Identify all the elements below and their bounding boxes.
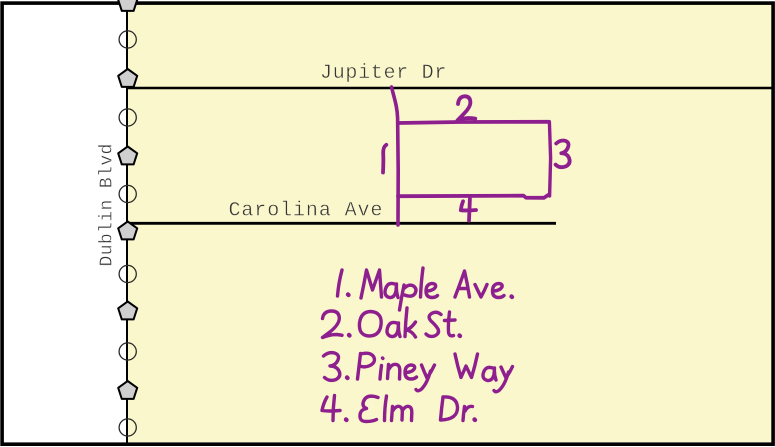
svg-text:Dublin Blvd: Dublin Blvd [98,143,118,266]
svg-text:Jupiter Dr: Jupiter Dr [320,62,447,85]
svg-text:Carolina Ave: Carolina Ave [229,199,384,222]
